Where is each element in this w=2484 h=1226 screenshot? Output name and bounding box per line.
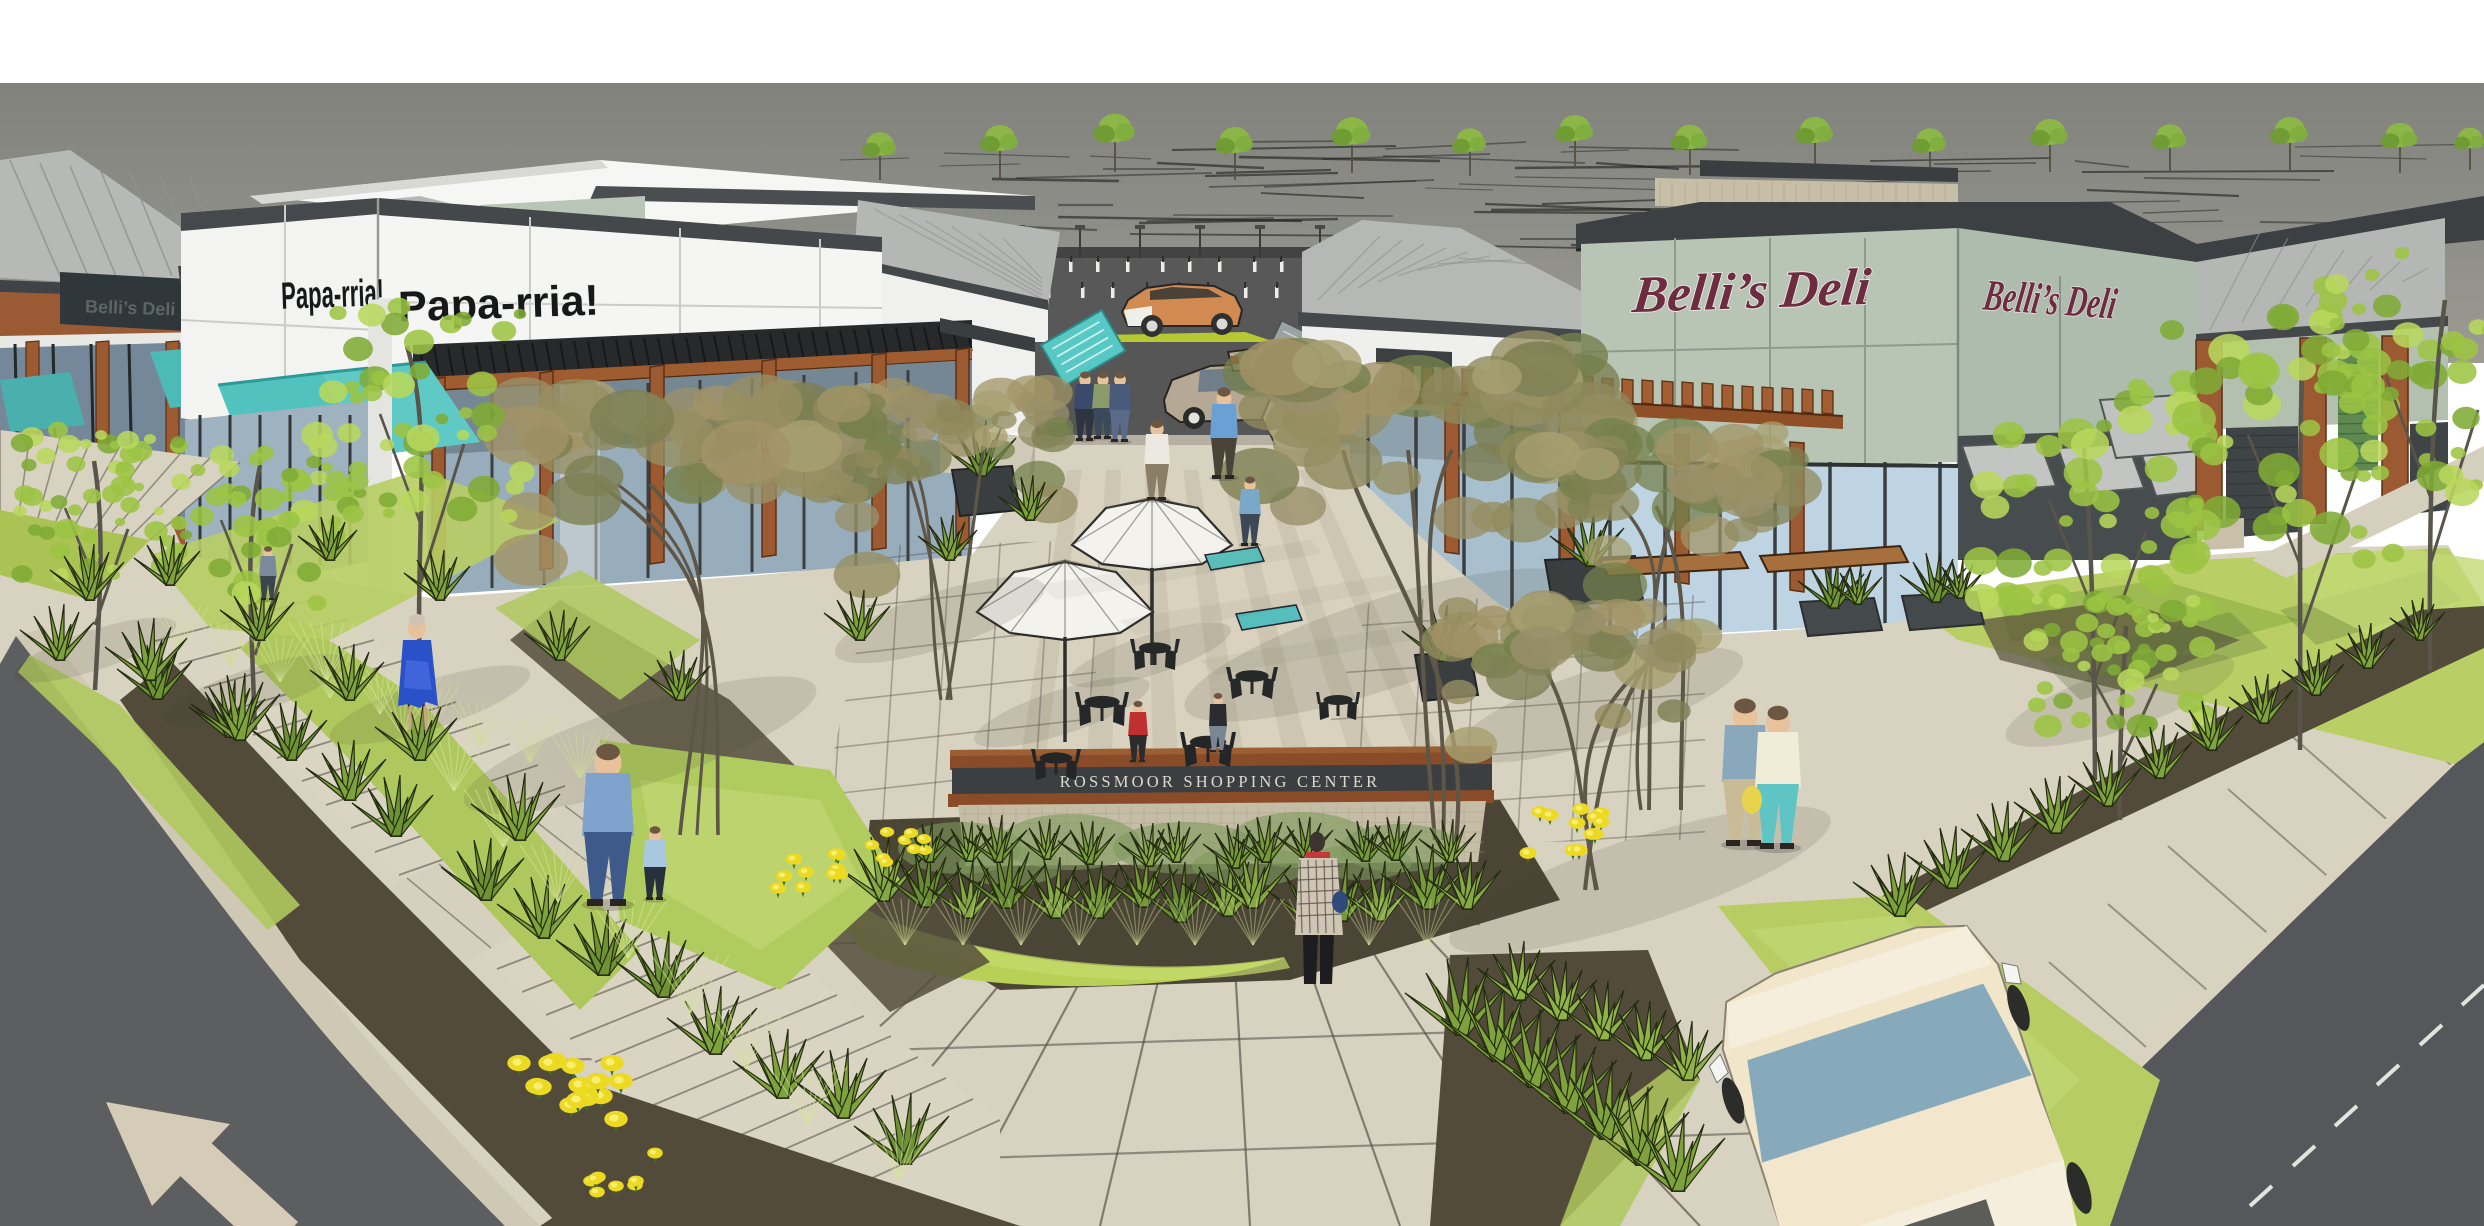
svg-text:ROSSMOOR SHOPPING CENTER: ROSSMOOR SHOPPING CENTER — [1060, 772, 1381, 791]
svg-text:Belli’s Deli: Belli’s Deli — [1979, 272, 2120, 329]
svg-text:Belli’s Deli: Belli’s Deli — [1629, 258, 1874, 324]
svg-text:Belli’s Deli: Belli’s Deli — [85, 296, 176, 319]
